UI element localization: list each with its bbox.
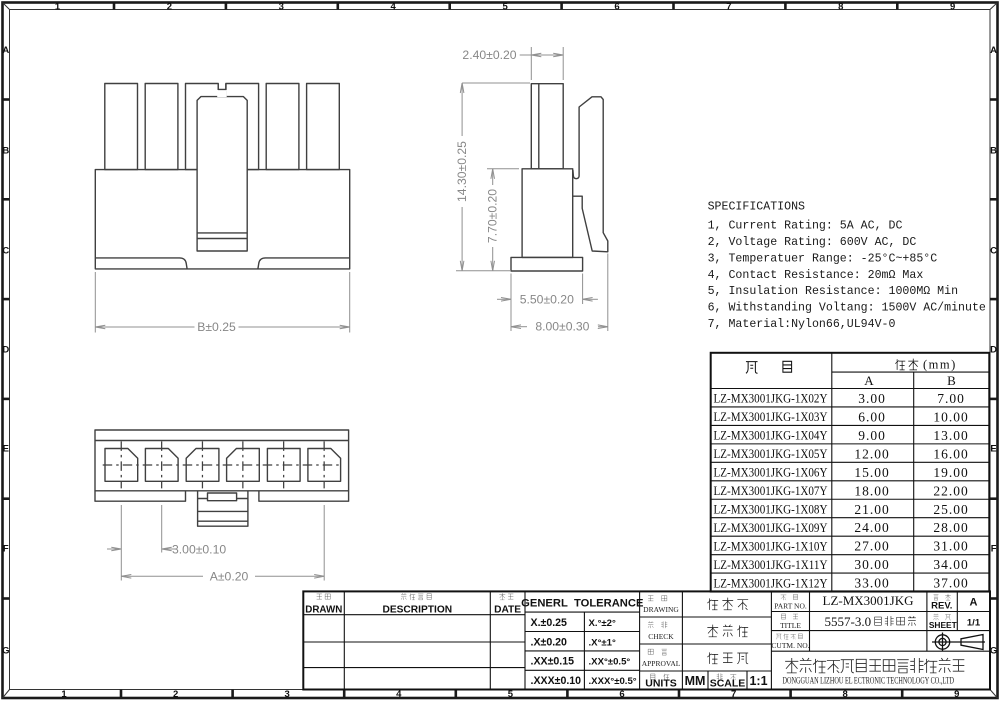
svg-text:DRAWN: DRAWN [305, 605, 342, 616]
svg-text:UNITS: UNITS [645, 678, 677, 690]
svg-text:LZ-MX3001JKG: LZ-MX3001JKG [823, 593, 914, 608]
svg-text:.XX°±0.5°: .XX°±0.5° [589, 657, 631, 668]
svg-text:6: 6 [614, 1, 619, 12]
svg-text:25.00: 25.00 [933, 502, 968, 517]
svg-text:A: A [2, 45, 9, 56]
svg-text:LZ-MX3001JKG-1X05Y: LZ-MX3001JKG-1X05Y [714, 447, 828, 461]
svg-text:B: B [947, 373, 956, 388]
svg-text:APPROVAL: APPROVAL [642, 659, 681, 668]
svg-text:TITLE: TITLE [780, 621, 801, 630]
svg-text:30.00: 30.00 [854, 557, 889, 572]
svg-text:14.30±0.25: 14.30±0.25 [455, 141, 469, 202]
svg-text:7, Material:Nylon66,UL94V-0: 7, Material:Nylon66,UL94V-0 [708, 318, 896, 331]
svg-text:10.00: 10.00 [933, 410, 968, 425]
svg-text:1:1: 1:1 [749, 674, 767, 688]
svg-text:D: D [990, 345, 997, 356]
svg-text:1/1: 1/1 [967, 618, 981, 629]
svg-text:CHECK: CHECK [648, 632, 674, 641]
svg-text:C: C [2, 246, 9, 257]
svg-text:DRAWING: DRAWING [643, 605, 679, 614]
svg-text:3, Temperatuer Range: -25°C~+8: 3, Temperatuer Range: -25°C~+85°C [708, 252, 938, 265]
svg-text:28.00: 28.00 [933, 520, 968, 535]
svg-text:LZ-MX3001JKG-1X06Y: LZ-MX3001JKG-1X06Y [714, 466, 828, 480]
svg-text:PART NO.: PART NO. [774, 602, 807, 611]
svg-text:.XXX°±0.5°: .XXX°±0.5° [589, 676, 637, 687]
svg-text:DESCRIPTION: DESCRIPTION [382, 605, 452, 616]
svg-text:C: C [990, 246, 997, 257]
svg-text:1: 1 [55, 1, 61, 12]
svg-text:24.00: 24.00 [854, 520, 889, 535]
svg-text:E: E [990, 444, 996, 455]
svg-text:B: B [2, 146, 9, 157]
svg-text:4, Contact Resistance: 20mΩ Ma: 4, Contact Resistance: 20mΩ Max [708, 269, 924, 282]
svg-text:2.40±0.20: 2.40±0.20 [462, 48, 516, 62]
svg-text:LZ-MX3001JKG-1X09Y: LZ-MX3001JKG-1X09Y [714, 521, 828, 535]
svg-text:LZ-MX3001JKG-1X11Y: LZ-MX3001JKG-1X11Y [714, 558, 828, 572]
svg-text:G: G [990, 646, 997, 657]
svg-text:F: F [991, 544, 997, 555]
svg-text:2: 2 [167, 1, 172, 12]
svg-text:2, Voltage Rating: 600V AC, DC: 2, Voltage Rating: 600V AC, DC [708, 236, 917, 249]
svg-text:A±0.20: A±0.20 [210, 570, 249, 584]
svg-text:LZ-MX3001JKG-1X12Y: LZ-MX3001JKG-1X12Y [714, 576, 828, 590]
svg-text:.XXX±0.10: .XXX±0.10 [531, 675, 582, 687]
svg-text:3.00±0.10: 3.00±0.10 [172, 543, 226, 557]
svg-text:5, Insulation Resistance: 1000: 5, Insulation Resistance: 1000MΩ Min [708, 285, 958, 298]
svg-text:27.00: 27.00 [854, 539, 889, 554]
svg-text:8: 8 [838, 1, 843, 12]
svg-text:A: A [970, 597, 978, 609]
svg-text:6.00: 6.00 [858, 410, 886, 425]
svg-text:D: D [2, 345, 9, 356]
svg-text:A: A [990, 45, 997, 56]
svg-text:REV.: REV. [931, 601, 952, 612]
svg-text:F: F [3, 544, 9, 555]
svg-text:33.00: 33.00 [854, 576, 889, 591]
svg-text:5557-3.0: 5557-3.0 [825, 614, 872, 629]
svg-text:15.00: 15.00 [854, 465, 889, 480]
svg-text:13.00: 13.00 [933, 428, 968, 443]
svg-text:E: E [3, 444, 9, 455]
svg-text:19.00: 19.00 [933, 465, 968, 480]
svg-text:LZ-MX3001JKG-1X04Y: LZ-MX3001JKG-1X04Y [714, 429, 828, 443]
svg-text:MM: MM [685, 674, 706, 688]
svg-text:LZ-MX3001JKG-1X10Y: LZ-MX3001JKG-1X10Y [714, 539, 828, 553]
svg-text:7: 7 [726, 1, 731, 12]
svg-text:2: 2 [173, 689, 178, 700]
svg-text:DONGGUAN LIZHOU EL ECTRONIC TE: DONGGUAN LIZHOU EL ECTRONIC TECHNOLOGY C… [783, 676, 955, 686]
svg-text:X.°±2°: X.°±2° [589, 618, 617, 629]
svg-text:7.70±0.20: 7.70±0.20 [486, 189, 500, 243]
svg-text:12.00: 12.00 [854, 446, 889, 461]
svg-text:21.00: 21.00 [854, 502, 889, 517]
svg-text:A: A [864, 373, 874, 388]
svg-text:8.00±0.30: 8.00±0.30 [535, 320, 589, 334]
svg-text:5: 5 [502, 1, 508, 12]
svg-text:LZ-MX3001JKG-1X08Y: LZ-MX3001JKG-1X08Y [714, 503, 828, 517]
svg-text:GENERL TOLERANCE: GENERL TOLERANCE [521, 598, 644, 610]
svg-text:9.00: 9.00 [858, 428, 886, 443]
svg-text:3: 3 [279, 1, 284, 12]
svg-text:1: 1 [61, 689, 67, 700]
svg-text:3: 3 [285, 689, 290, 700]
svg-text:7.00: 7.00 [937, 391, 965, 406]
svg-text:18.00: 18.00 [854, 483, 889, 498]
svg-text:SPECIFICATIONS: SPECIFICATIONS [708, 200, 805, 213]
svg-text:22.00: 22.00 [933, 483, 968, 498]
svg-text:.X°±1°: .X°±1° [589, 637, 617, 648]
svg-text:.XX±0.15: .XX±0.15 [531, 656, 575, 668]
svg-text:SHEET: SHEET [929, 620, 958, 630]
svg-text:3.00: 3.00 [858, 391, 886, 406]
svg-text:16.00: 16.00 [933, 446, 968, 461]
svg-text:6, Withstanding Voltang: 1500V: 6, Withstanding Voltang: 1500V AC/minute [708, 302, 986, 315]
svg-text:SCALE: SCALE [710, 678, 746, 690]
svg-text:4: 4 [391, 1, 397, 12]
svg-text:34.00: 34.00 [933, 557, 968, 572]
svg-text:1, Current Rating: 5A AC, DC: 1, Current Rating: 5A AC, DC [708, 220, 903, 233]
svg-text:LZ-MX3001JKG-1X03Y: LZ-MX3001JKG-1X03Y [714, 410, 828, 424]
svg-text:B±0.25: B±0.25 [197, 320, 236, 334]
svg-text:5.50±0.20: 5.50±0.20 [520, 292, 574, 306]
svg-text:9: 9 [950, 1, 955, 12]
svg-text:B: B [990, 146, 997, 157]
svg-text:X.±0.25: X.±0.25 [531, 617, 568, 629]
svg-text:CUTM. NO.: CUTM. NO. [771, 641, 809, 650]
svg-text:(mm): (mm) [923, 358, 957, 372]
svg-text:LZ-MX3001JKG-1X07Y: LZ-MX3001JKG-1X07Y [714, 484, 828, 498]
svg-text:G: G [2, 646, 9, 657]
svg-text:31.00: 31.00 [933, 539, 968, 554]
svg-text:LZ-MX3001JKG-1X02Y: LZ-MX3001JKG-1X02Y [714, 392, 828, 406]
svg-text:DATE: DATE [494, 605, 521, 616]
svg-text:.X±0.20: .X±0.20 [531, 636, 568, 648]
svg-text:37.00: 37.00 [933, 576, 968, 591]
